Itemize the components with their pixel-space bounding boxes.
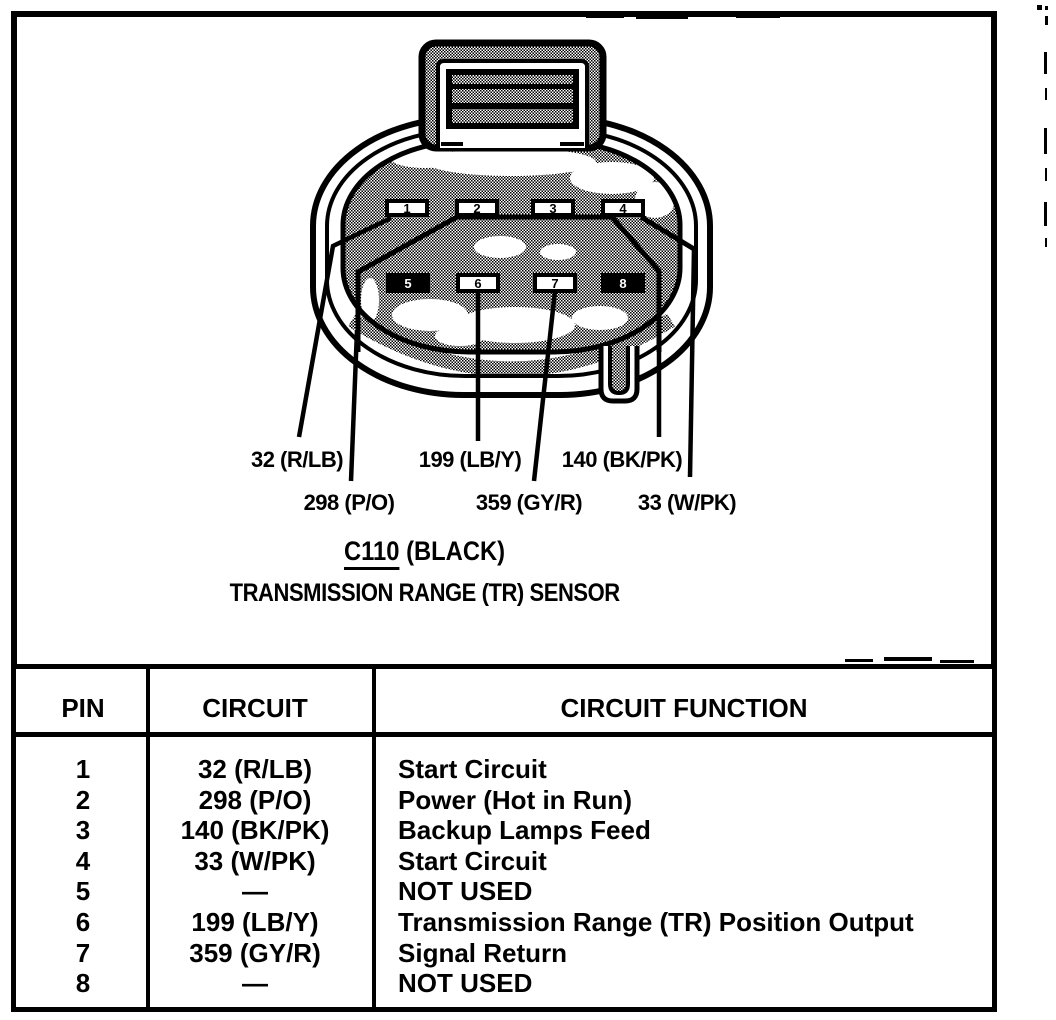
pin-7: 7 [535, 275, 575, 291]
table-row: 5 — NOT USED [16, 876, 992, 907]
cell-circuit: — [150, 876, 376, 907]
table-row: 4 33 (W/PK) Start Circuit [16, 846, 992, 877]
cell-pin: 2 [16, 785, 150, 816]
cell-circuit: 199 (LB/Y) [150, 907, 376, 938]
wire-label-359: 359 (GY/R) [476, 490, 582, 515]
cell-pin: 5 [16, 876, 150, 907]
cell-circuit: — [150, 968, 376, 999]
cell-circuit: 140 (BK/PK) [150, 815, 376, 846]
latch-bar-top [452, 84, 573, 89]
pin-3-number: 3 [549, 201, 556, 216]
cell-function: Start Circuit [376, 846, 992, 877]
cell-function: Signal Return [376, 938, 992, 969]
pin-2: 2 [457, 201, 497, 216]
pin-6-number: 6 [474, 276, 481, 291]
cell-function: Power (Hot in Run) [376, 785, 992, 816]
table-divider-1 [146, 669, 150, 1007]
index-notch-inner [610, 346, 628, 393]
cell-circuit: 359 (GY/R) [150, 938, 376, 969]
cell-pin: 1 [16, 754, 150, 785]
pin-1: 1 [387, 201, 427, 216]
cell-circuit: 298 (P/O) [150, 785, 376, 816]
table-row: 7 359 (GY/R) Signal Return [16, 938, 992, 969]
pin-4-number: 4 [619, 201, 627, 216]
connector-subtitle: TRANSMISSION RANGE (TR) SENSOR [0, 578, 850, 608]
pin-7-number: 7 [551, 276, 558, 291]
header-circuit: CIRCUIT [150, 693, 376, 732]
table-body: 1 32 (R/LB) Start Circuit 2 298 (P/O) Po… [16, 737, 992, 999]
table-row: 2 298 (P/O) Power (Hot in Run) [16, 785, 992, 816]
cell-function: NOT USED [376, 968, 992, 999]
cell-function: Start Circuit [376, 754, 992, 785]
pin-3: 3 [533, 201, 573, 216]
cell-function: Backup Lamps Feed [376, 815, 992, 846]
connector-id: C110 [344, 536, 399, 570]
wire-label-199: 199 (LB/Y) [419, 447, 522, 472]
connector-body [313, 118, 710, 401]
connector-color: (BLACK) [400, 536, 506, 566]
header-pin: PIN [16, 693, 150, 732]
wire-label-298: 298 (P/O) [304, 490, 395, 515]
pin-function-table: PIN CIRCUIT CIRCUIT FUNCTION 1 32 (R/LB)… [11, 664, 997, 1012]
wire-label-33: 33 (W/PK) [638, 490, 736, 515]
diagram-titles: C110 (BLACK) TRANSMISSION RANGE (TR) SEN… [0, 538, 850, 608]
pin-5: 5 [388, 275, 428, 291]
table-row: 3 140 (BK/PK) Backup Lamps Feed [16, 815, 992, 846]
latch-bar-bottom [452, 103, 573, 109]
pin-2-number: 2 [473, 201, 480, 216]
pin-1-number: 1 [403, 201, 410, 216]
table-row: 6 199 (LB/Y) Transmission Range (TR) Pos… [16, 907, 992, 938]
cell-circuit: 32 (R/LB) [150, 754, 376, 785]
wire-label-32: 32 (R/LB) [251, 447, 343, 472]
table-row: 1 32 (R/LB) Start Circuit [16, 754, 992, 785]
wire-label-140: 140 (BK/PK) [562, 447, 683, 472]
table-header-row: PIN CIRCUIT CIRCUIT FUNCTION [16, 669, 992, 737]
cell-circuit: 33 (W/PK) [150, 846, 376, 877]
table-divider-2 [372, 669, 376, 1007]
connector-title: C110 (BLACK) [0, 538, 850, 565]
scanned-manual-page: 1 2 3 4 5 6 7 8 32 (R/LB) 199 (LB/Y) 140… [0, 0, 1056, 1020]
cell-function: Transmission Range (TR) Position Output [376, 907, 992, 938]
table-row: 8 — NOT USED [16, 968, 992, 999]
header-circuit-function: CIRCUIT FUNCTION [376, 693, 992, 732]
cell-function: NOT USED [376, 876, 992, 907]
pin-4: 4 [603, 201, 643, 216]
leader-pin2 [351, 330, 357, 481]
cell-pin: 4 [16, 846, 150, 877]
pin-8: 8 [603, 275, 643, 291]
cell-pin: 6 [16, 907, 150, 938]
leader-pin4 [690, 249, 694, 477]
connector-latch [422, 43, 603, 148]
latch-block [449, 72, 576, 126]
cell-pin: 3 [16, 815, 150, 846]
pin-6: 6 [458, 275, 498, 291]
pin-8-number: 8 [619, 276, 626, 291]
cell-pin: 7 [16, 938, 150, 969]
wire-labels: 32 (R/LB) 199 (LB/Y) 140 (BK/PK) 298 (P/… [251, 447, 736, 515]
pin-5-number: 5 [404, 276, 411, 291]
cell-pin: 8 [16, 968, 150, 999]
